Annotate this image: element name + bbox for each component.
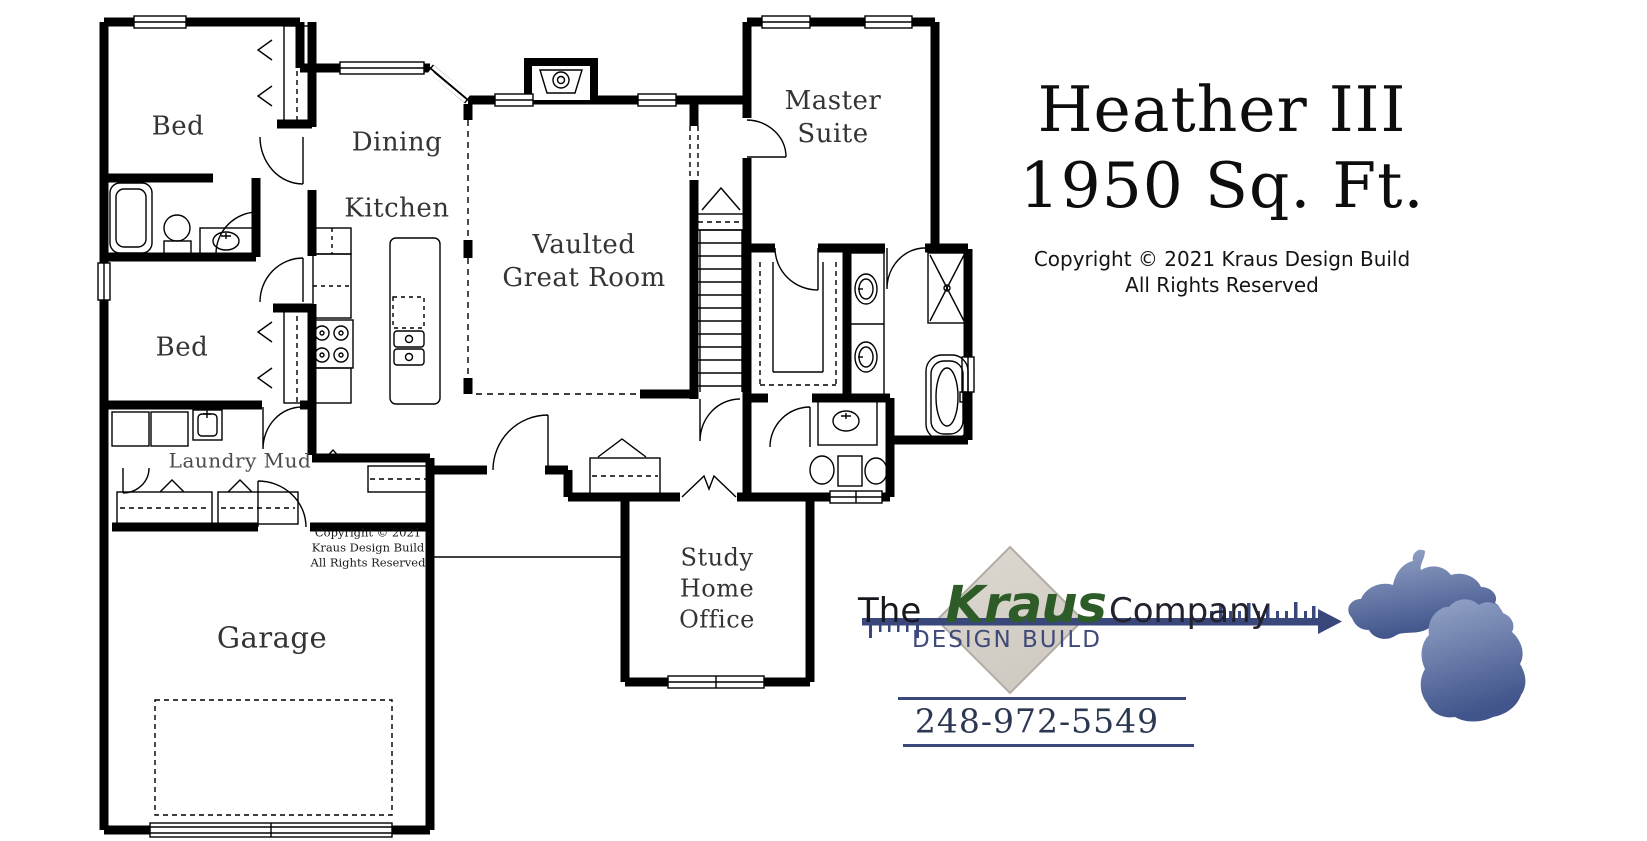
door-arc — [887, 248, 925, 289]
door-arc — [700, 399, 740, 441]
shower-icon — [928, 253, 966, 323]
door-arc — [123, 468, 149, 493]
fireplace-icon — [528, 62, 594, 100]
door-arc — [263, 407, 302, 449]
room-label-bedroom-top: Bed — [152, 111, 205, 144]
logo-word-the: The — [858, 591, 921, 631]
room-label-master-suite: Master Suite — [785, 85, 882, 151]
stairs-icon — [696, 188, 746, 392]
floor-plan-sheet: Bed Dining Kitchen Vaulted Great Room Ma… — [0, 0, 1647, 841]
front-door-arc — [493, 415, 548, 470]
title-block: Heather III 1950 Sq. Ft. Copyright © 202… — [1020, 72, 1425, 298]
vanity-icon — [818, 400, 877, 445]
room-label-bedroom-bottom: Bed — [156, 332, 209, 365]
room-label-garage: Garage — [217, 622, 327, 655]
porch-outline — [430, 499, 622, 557]
room-label-laundry: Laundry Mud — [169, 445, 312, 478]
michigan-state-icon — [1348, 550, 1525, 722]
room-label-dining: Dining — [352, 127, 443, 160]
door-arc — [770, 407, 810, 447]
dishwasher-icon — [393, 297, 424, 328]
kitchen-island — [390, 238, 440, 404]
door-arc — [747, 120, 786, 157]
toilet-icon — [164, 215, 190, 241]
closet-door-chevrons — [258, 40, 272, 106]
room-label-study: Study Home Office — [679, 543, 755, 636]
phone-divider-bottom — [903, 744, 1194, 747]
dryer-icon — [151, 412, 188, 446]
logo-tagline: DESIGN BUILD — [912, 627, 1102, 653]
kitchen-sink-icon — [394, 331, 424, 347]
room-label-kitchen: Kitchen — [344, 193, 449, 226]
arrow-head — [1318, 609, 1342, 634]
plan-area: 1950 Sq. Ft. — [1020, 148, 1425, 224]
phone-number: 248-972-5549 — [915, 702, 1159, 741]
room-label-great-room: Vaulted Great Room — [502, 229, 665, 295]
copyright-text: Copyright © 2021 Kraus Design Build All … — [1020, 246, 1425, 298]
logo-word-company: Company — [1109, 591, 1271, 631]
door-arc — [258, 481, 306, 527]
walk-in-closet — [760, 262, 836, 385]
master-tub-icon — [926, 355, 968, 440]
door-arc — [260, 258, 303, 302]
door-arc — [260, 137, 303, 184]
plan-copyright-stamp: Copyright © 2021 Kraus Design Build All … — [311, 526, 426, 571]
plan-name: Heather III — [1020, 72, 1425, 148]
washer-icon — [112, 412, 149, 446]
garage-parking-dashed — [155, 700, 392, 815]
door-arc — [775, 248, 818, 290]
phone-divider-top — [898, 697, 1186, 700]
toilet-icon — [810, 456, 834, 484]
double-door-icon — [682, 476, 736, 497]
